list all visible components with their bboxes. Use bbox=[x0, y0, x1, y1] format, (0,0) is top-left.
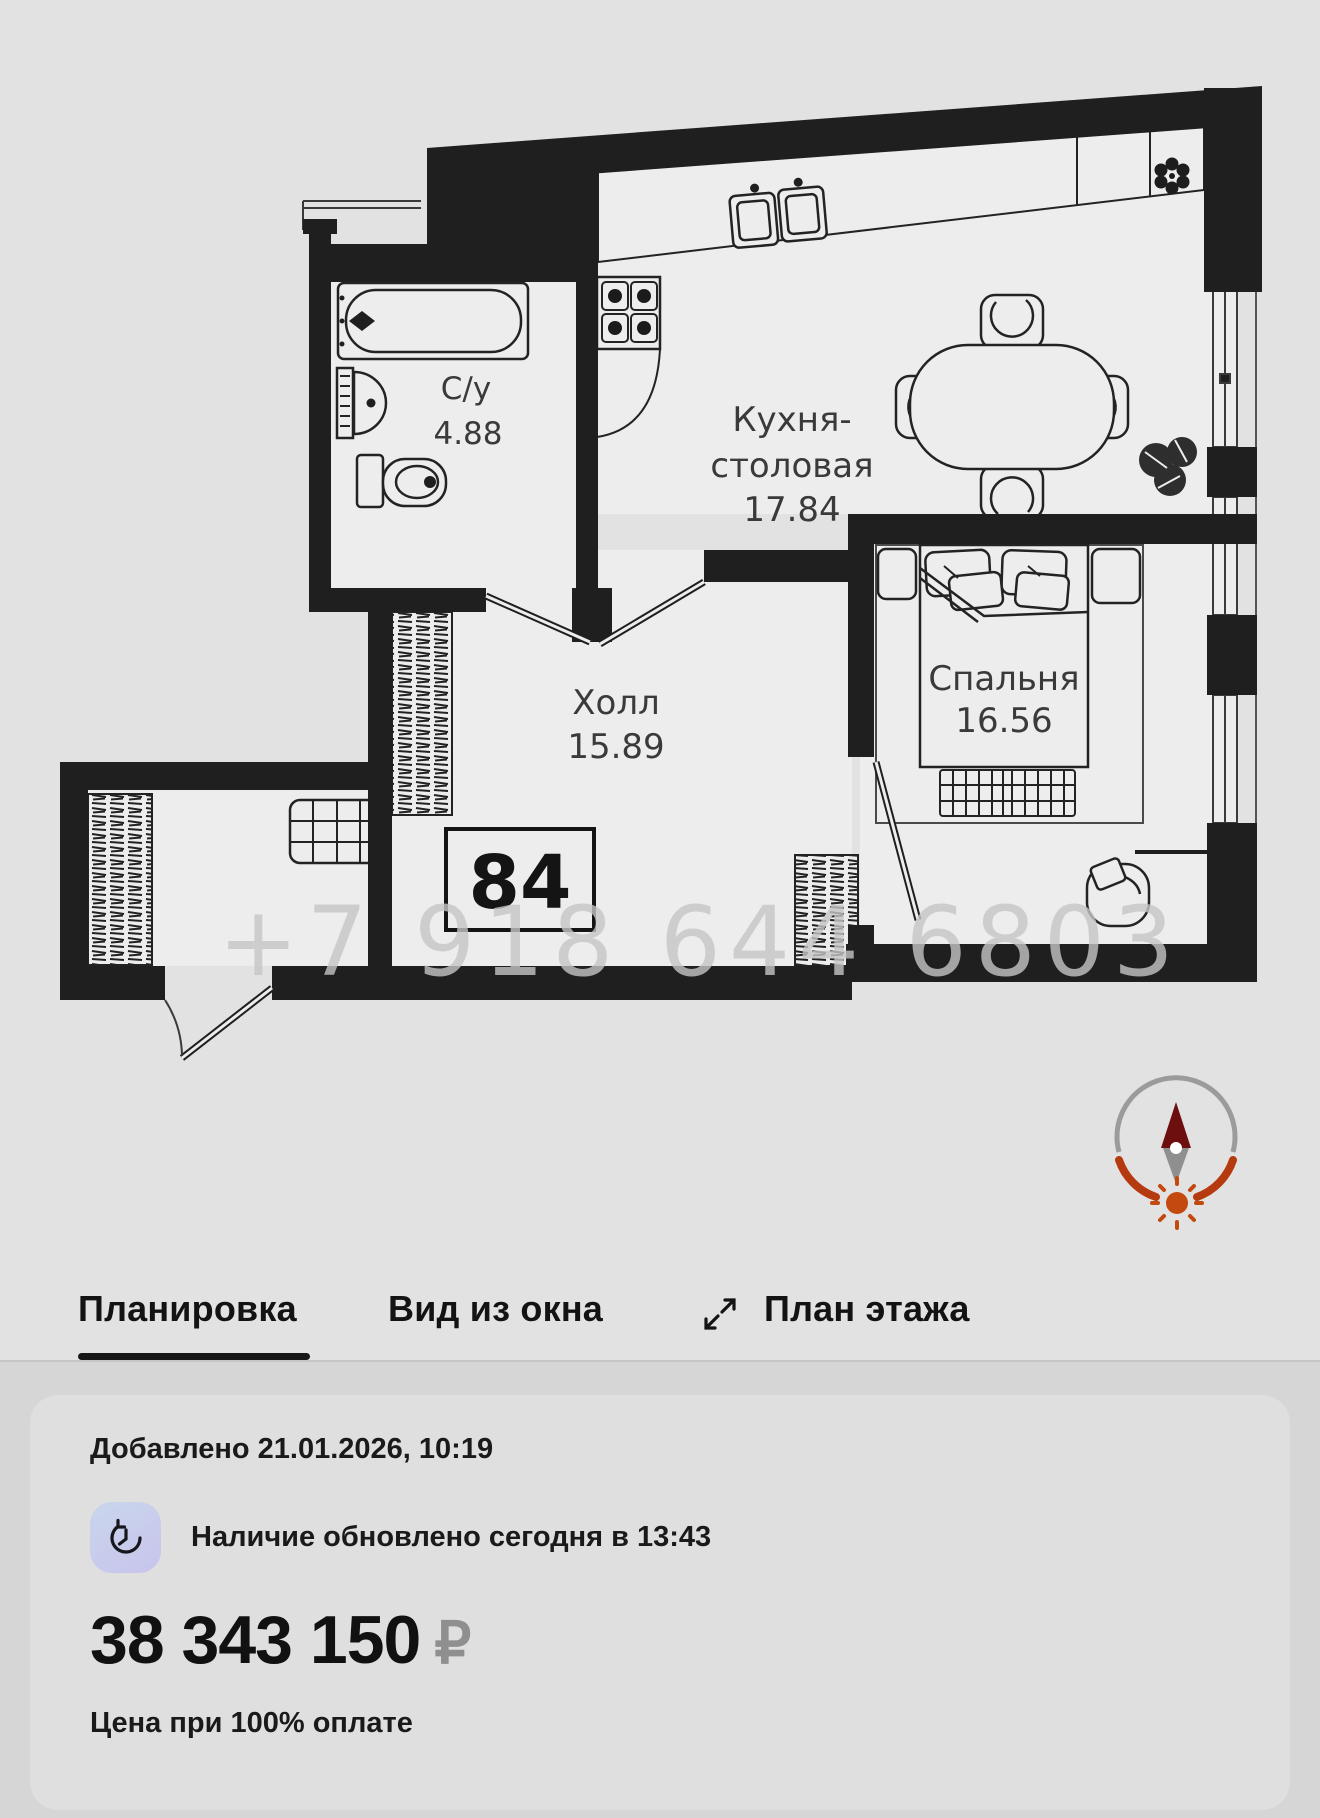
watermark-phone: +7 918 644 6803 bbox=[218, 886, 1182, 998]
svg-text:17.84: 17.84 bbox=[743, 490, 840, 530]
price-note: Цена при 100% оплате bbox=[90, 1707, 1230, 1740]
floor-plan-viewer[interactable]: С/у 4.88 Кухня- столовая 17.84 Холл 15.8… bbox=[0, 0, 1320, 1270]
svg-text:16.56: 16.56 bbox=[955, 701, 1052, 741]
compass-sun bbox=[1152, 1178, 1202, 1228]
svg-text:Спальня: Спальня bbox=[928, 659, 1079, 699]
tab-window-view[interactable]: Вид из окна bbox=[388, 1288, 603, 1330]
added-date: Добавлено 21.01.2026, 10:19 bbox=[90, 1433, 1230, 1466]
svg-text:Кухня-: Кухня- bbox=[732, 400, 851, 440]
ruble-sign: ₽ bbox=[434, 1609, 471, 1677]
svg-text:Холл: Холл bbox=[572, 683, 660, 723]
price-row: 38 343 150 ₽ bbox=[90, 1601, 1230, 1679]
svg-text:15.89: 15.89 bbox=[567, 727, 664, 767]
tab-bar: Планировка Вид из окна План этажа bbox=[0, 1270, 1320, 1362]
svg-text:4.88: 4.88 bbox=[433, 416, 502, 452]
listing-card: Добавлено 21.01.2026, 10:19 Наличие обно… bbox=[30, 1395, 1290, 1810]
svg-text:столовая: столовая bbox=[710, 446, 873, 486]
availability-badge bbox=[90, 1502, 161, 1573]
price-value: 38 343 150 bbox=[90, 1601, 420, 1679]
listing-section: Добавлено 21.01.2026, 10:19 Наличие обно… bbox=[0, 1362, 1320, 1818]
tab-floor-plan[interactable]: План этажа bbox=[764, 1288, 970, 1330]
tab-layout[interactable]: Планировка bbox=[78, 1288, 297, 1330]
toilet-icon bbox=[357, 455, 446, 507]
bathtub-icon bbox=[338, 283, 528, 359]
clock-refresh-icon bbox=[105, 1517, 147, 1559]
active-tab-underline bbox=[78, 1353, 310, 1360]
availability-text: Наличие обновлено сегодня в 13:43 bbox=[191, 1521, 711, 1554]
compass-icon bbox=[1117, 1078, 1235, 1228]
svg-text:С/у: С/у bbox=[441, 371, 491, 407]
expand-icon[interactable] bbox=[698, 1292, 742, 1336]
